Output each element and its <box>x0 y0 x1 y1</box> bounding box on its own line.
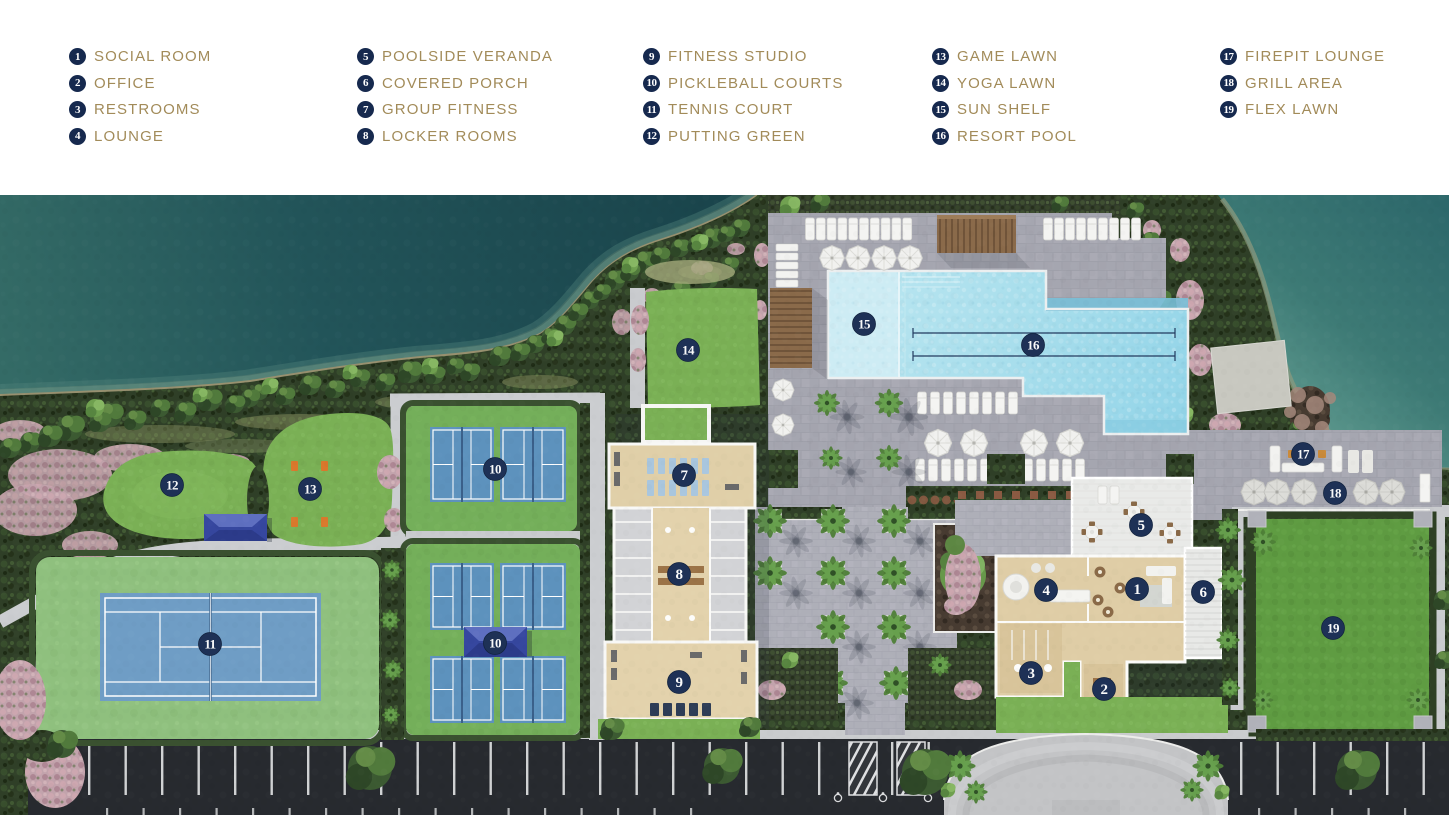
svg-text:16: 16 <box>1027 337 1040 352</box>
svg-text:9: 9 <box>676 675 683 691</box>
svg-text:8: 8 <box>676 567 683 583</box>
svg-text:5: 5 <box>1138 518 1145 534</box>
svg-text:4: 4 <box>1043 583 1051 599</box>
svg-text:7: 7 <box>681 468 689 484</box>
svg-text:17: 17 <box>1297 446 1310 461</box>
svg-text:2: 2 <box>1101 682 1108 698</box>
svg-text:3: 3 <box>1028 666 1035 682</box>
svg-text:1: 1 <box>1134 582 1141 598</box>
svg-text:10: 10 <box>489 461 501 476</box>
svg-text:14: 14 <box>682 342 695 357</box>
svg-text:18: 18 <box>1329 485 1342 500</box>
svg-text:11: 11 <box>204 636 215 651</box>
svg-text:10: 10 <box>489 635 501 650</box>
svg-text:19: 19 <box>1327 620 1340 635</box>
svg-text:13: 13 <box>304 481 317 496</box>
svg-text:6: 6 <box>1200 585 1208 601</box>
svg-text:12: 12 <box>166 477 178 492</box>
svg-text:15: 15 <box>858 316 871 331</box>
